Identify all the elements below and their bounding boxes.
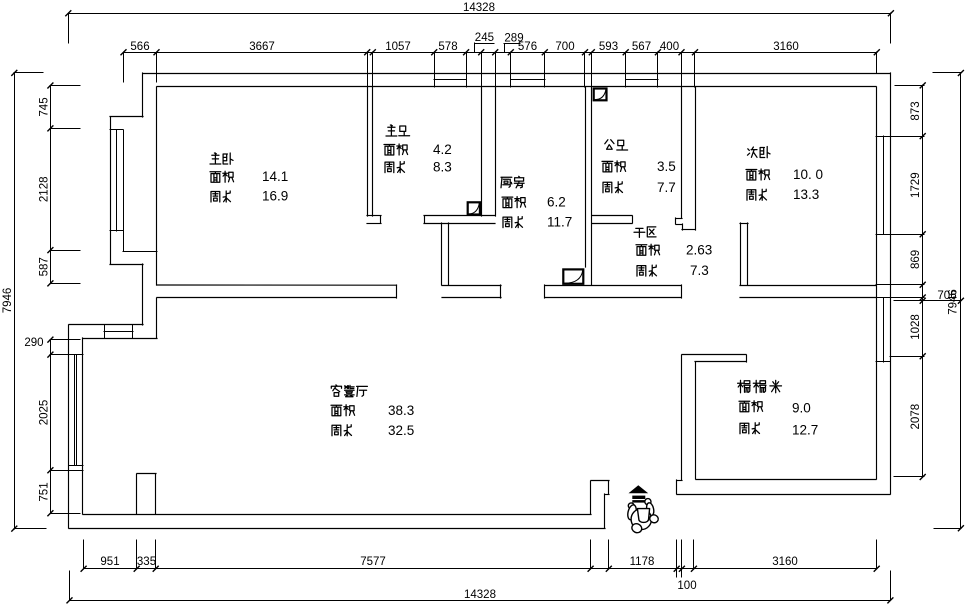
- svg-text:1028: 1028: [910, 314, 922, 340]
- svg-text:7.7: 7.7: [657, 180, 676, 195]
- svg-text:951: 951: [100, 556, 119, 568]
- svg-text:2025: 2025: [39, 400, 51, 426]
- svg-text:6.2: 6.2: [547, 195, 566, 210]
- svg-text:8.3: 8.3: [433, 160, 452, 175]
- svg-text:7946: 7946: [2, 288, 14, 314]
- svg-text:38.3: 38.3: [388, 403, 414, 418]
- svg-text:7577: 7577: [360, 556, 386, 568]
- svg-text:4.2: 4.2: [433, 142, 452, 157]
- svg-text:745: 745: [39, 97, 51, 116]
- svg-text:1729: 1729: [910, 172, 922, 198]
- svg-text:335: 335: [137, 556, 156, 568]
- svg-text:3160: 3160: [772, 556, 798, 568]
- svg-text:7.3: 7.3: [690, 263, 709, 278]
- svg-text:566: 566: [130, 41, 149, 53]
- svg-text:400: 400: [660, 41, 679, 53]
- svg-text:32.5: 32.5: [388, 423, 414, 438]
- svg-text:3160: 3160: [773, 41, 799, 53]
- svg-text:593: 593: [599, 41, 618, 53]
- svg-text:12.7: 12.7: [792, 423, 818, 438]
- svg-text:2.63: 2.63: [686, 243, 712, 258]
- svg-text:13.3: 13.3: [793, 187, 819, 202]
- svg-text:751: 751: [39, 482, 51, 501]
- svg-text:587: 587: [39, 257, 51, 276]
- svg-text:7946: 7946: [948, 289, 960, 315]
- svg-text:290: 290: [24, 337, 43, 349]
- svg-text:11.7: 11.7: [547, 215, 572, 230]
- svg-text:578: 578: [438, 41, 457, 53]
- svg-text:14.1: 14.1: [262, 169, 288, 184]
- svg-text:1057: 1057: [385, 41, 411, 53]
- svg-text:3667: 3667: [249, 41, 275, 53]
- svg-text:2078: 2078: [910, 404, 922, 430]
- svg-text:567: 567: [632, 41, 651, 53]
- svg-text:14328: 14328: [463, 2, 495, 14]
- svg-text:100: 100: [677, 580, 696, 592]
- svg-text:10. 0: 10. 0: [793, 167, 823, 182]
- svg-text:1178: 1178: [630, 556, 655, 568]
- svg-text:14328: 14328: [464, 589, 496, 601]
- svg-text:289: 289: [504, 33, 523, 45]
- svg-text:3.5: 3.5: [657, 159, 676, 174]
- svg-text:2128: 2128: [39, 177, 51, 203]
- svg-text:16.9: 16.9: [262, 189, 288, 204]
- svg-text:873: 873: [910, 101, 922, 120]
- svg-text:700: 700: [555, 41, 574, 53]
- svg-text:869: 869: [910, 250, 922, 269]
- svg-text:245: 245: [475, 32, 494, 44]
- svg-text:9.0: 9.0: [792, 401, 811, 416]
